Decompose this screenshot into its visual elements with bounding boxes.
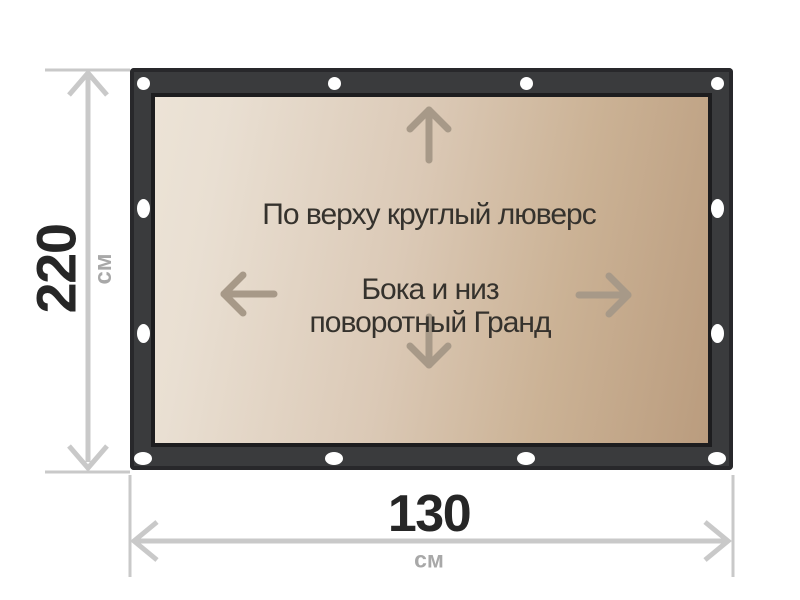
top-edge-note: По верху круглый люверс xyxy=(262,198,595,232)
right-arrow-icon xyxy=(579,276,628,314)
sides-bottom-note: Бока и низ поворотный Гранд xyxy=(310,273,551,339)
grommet xyxy=(517,452,535,465)
up-arrow-icon xyxy=(410,110,448,160)
grommet xyxy=(711,324,724,343)
width-dimension-unit: см xyxy=(414,547,444,574)
grommet xyxy=(137,77,150,90)
banner-frame: По верху круглый люверс Бока и низ повор… xyxy=(130,68,733,470)
grommet xyxy=(708,452,726,465)
width-dimension-value: 130 xyxy=(388,484,470,544)
grommet xyxy=(711,77,724,90)
grommet xyxy=(137,199,150,218)
grommet xyxy=(325,452,343,465)
grommet xyxy=(711,199,724,218)
sides-bottom-note-line2: поворотный Гранд xyxy=(310,306,551,339)
grommet xyxy=(137,324,150,343)
left-arrow-icon xyxy=(224,275,274,313)
grommet xyxy=(520,77,533,90)
banner-dimension-diagram: По верху круглый люверс Бока и низ повор… xyxy=(0,0,800,600)
sides-bottom-note-line1: Бока и низ xyxy=(310,273,551,306)
banner-surface xyxy=(151,93,712,447)
grommet xyxy=(328,77,341,90)
height-dimension-value: 220 xyxy=(24,225,89,314)
height-dimension-unit: см xyxy=(90,253,118,284)
grommet xyxy=(134,452,152,465)
